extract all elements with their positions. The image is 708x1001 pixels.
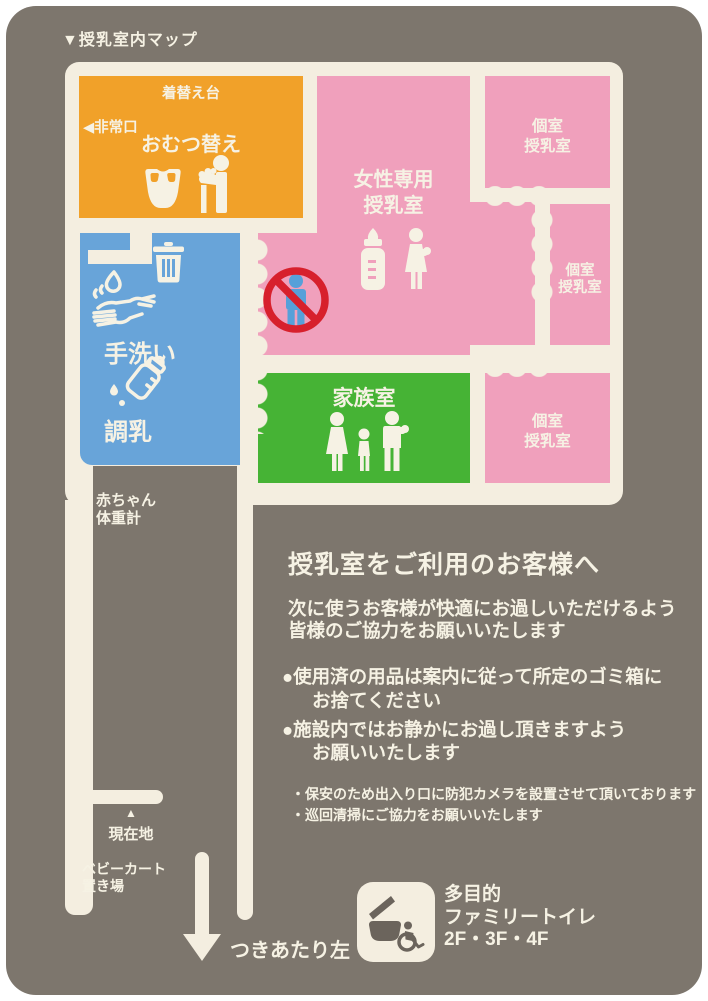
curtain-private-1 [484, 186, 550, 206]
bottle-drops-icon [100, 358, 180, 408]
toilet-info-line2: ファミリートイレ [444, 907, 596, 930]
baby-scale-label-line1: 赤ちゃん [96, 492, 156, 510]
diaper-icon [142, 165, 184, 212]
person-changing-baby-icon [192, 155, 234, 215]
current-location-marker: ▲ [101, 806, 161, 820]
notice-note1: ・保安のため出入り口に防犯カメラを設置させて頂いております [291, 784, 696, 804]
down-arrow-icon [195, 852, 209, 936]
notice-heading: 授乳室をご利用のお客様へ [288, 545, 600, 581]
corridor-left-wall [65, 500, 93, 915]
baby-scale-label-line2: 体重計 [96, 510, 156, 528]
baby-bottle-icon [356, 228, 436, 290]
curtain-private-3 [484, 357, 550, 377]
notice-note2: ・巡回清掃にご協力をお願いいたします [291, 805, 543, 825]
mother-holding-baby-icon [405, 228, 431, 289]
entrance-wall-stub [90, 790, 163, 804]
toilet-info-line1: 多目的 [444, 884, 596, 907]
stroller-parking-label-line2: 置き場 [82, 878, 166, 895]
wall-partition-horizontal [88, 250, 152, 264]
private-room-3-label-line2: 授乳室 [485, 432, 610, 452]
room-women-nursing-east [470, 202, 535, 345]
notice-bullet2-line2: お願いいたします [312, 739, 460, 765]
milk-prep-label: 調乳 [104, 412, 152, 447]
toilet-wheelchair-icon [367, 892, 425, 952]
women-nursing-label-line2: 授乳室 [317, 194, 470, 220]
exit-direction-label: つきあたり左 [230, 934, 350, 963]
notice-bullet1-line2: お捨てください [312, 687, 441, 713]
corridor-right-wall [237, 500, 253, 920]
women-nursing-label-line1: 女性専用 [317, 168, 470, 194]
stroller-parking-label-line1: ベビーカート [82, 861, 166, 878]
private-room-3-label-line1: 個室 [485, 412, 610, 432]
private-room-1-label-line2: 授乳室 [485, 137, 610, 157]
toilet-info-line3: 2F・3F・4F [444, 929, 596, 952]
notice-intro-line2: 皆様のご協力をお願いいたします [288, 620, 566, 642]
nursing-room-map-sign: ▼授乳室内マップ 着替え台 ◀非常口 おむつ替え 女性専用 授乳室 個室 授乳室… [0, 0, 708, 1001]
private-room-1-label-line1: 個室 [485, 117, 610, 137]
current-location-label: 現在地 [101, 823, 161, 844]
down-arrow-head [183, 934, 221, 961]
handwash-icon [84, 266, 164, 330]
diaper-room-label: おむつ替え [79, 128, 303, 157]
no-men-icon [262, 266, 330, 334]
toilet-icon-box [357, 882, 435, 962]
notice-intro-line1: 次に使うお客様が快適にお過しいただけるよう [288, 598, 677, 620]
family-icon [322, 410, 412, 476]
private-room-2-label-line2: 授乳室 [550, 280, 610, 297]
family-room-label: 家族室 [258, 382, 470, 412]
private-room-2-label-line1: 個室 [550, 263, 610, 280]
notice-bullet1-line1: ●使用済の用品は案内に従って所定のゴミ箱に [282, 663, 662, 689]
changing-table-label: 着替え台 [79, 82, 303, 103]
page-title: ▼授乳室内マップ [62, 26, 198, 50]
